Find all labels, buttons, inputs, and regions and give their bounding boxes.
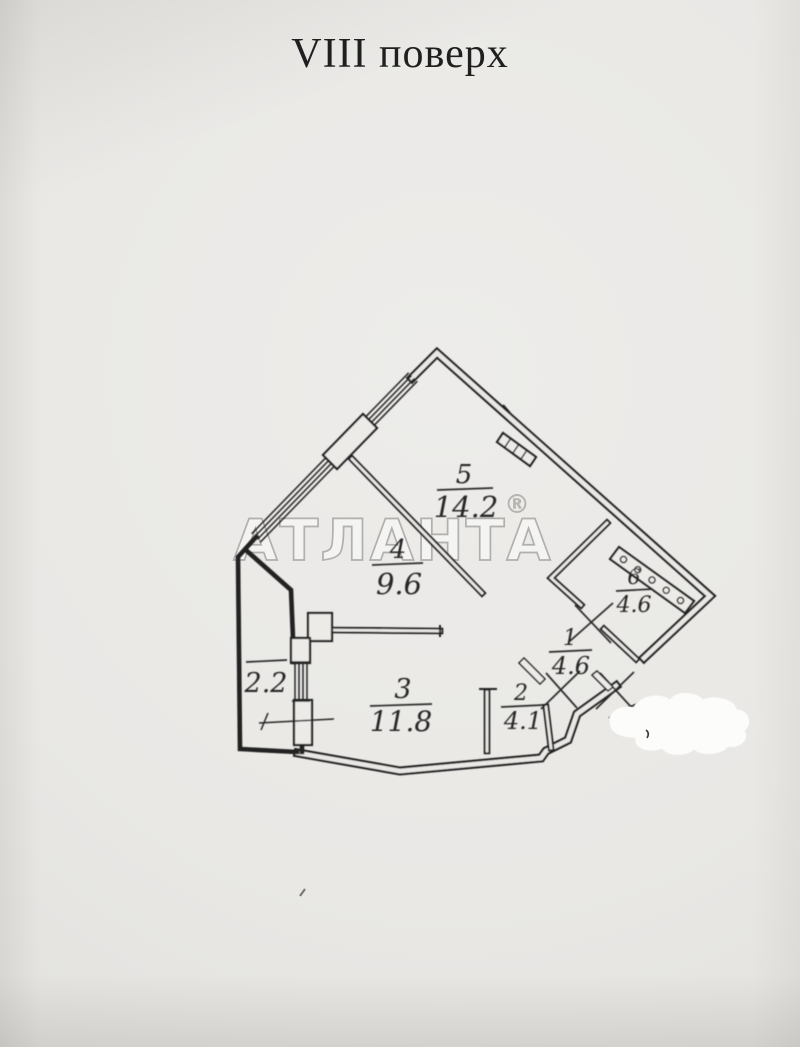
room-labels: 5 14.2 4 9.6 6 4.6 1 4.6 [244, 460, 653, 738]
room-5-label: 5 14.2 [434, 460, 499, 524]
registered-mark: ® [504, 490, 530, 520]
floor-plan-svg: АТЛАНТА ® [0, 0, 800, 1047]
room-2-label: 2 4.1 [501, 681, 543, 735]
room-5-area: 14.2 [434, 490, 499, 524]
balcony-area: 2.2 [244, 668, 288, 699]
room-2-number: 2 [513, 681, 528, 706]
room-3-number: 3 [394, 674, 411, 705]
room-4-area: 9.6 [376, 567, 422, 601]
balcony-label: 2.2 [244, 660, 288, 699]
wall-column [308, 613, 332, 641]
room-6-area: 4.6 [616, 593, 652, 618]
whiteout-blob [609, 693, 749, 756]
room-6-number: 6 [627, 565, 640, 589]
room-3-area: 11.8 [370, 705, 432, 738]
room-1-area: 4.6 [551, 652, 590, 680]
room-5-number: 5 [456, 460, 473, 490]
ink-speck [300, 889, 305, 896]
room-3-label: 3 11.8 [370, 674, 432, 738]
door-leaf-entrance [592, 671, 613, 691]
room-1-number: 1 [563, 626, 577, 651]
room-1-label: 1 4.6 [549, 626, 592, 680]
room-4-number: 4 [389, 535, 407, 565]
photo-background: VIII поверх АТЛАНТА ® [0, 0, 800, 1047]
room-2-area: 4.1 [503, 707, 542, 735]
